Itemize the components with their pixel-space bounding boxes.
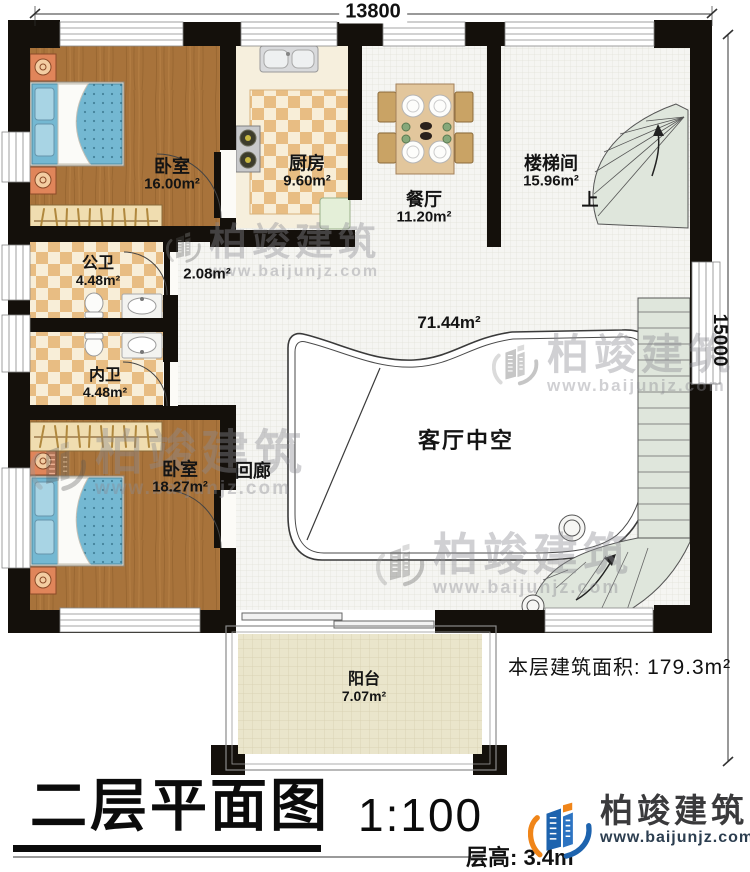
room-name: 内卫 [89, 367, 121, 385]
brand-company: 柏竣建筑 [600, 794, 750, 829]
floor-area-label: 本层建筑面积: [508, 657, 641, 679]
room-label-corridor: 回廊 [235, 457, 271, 483]
stair-direction-label: 上 [582, 186, 599, 211]
room-name: 卧室 [154, 157, 190, 177]
room-name: 厨房 [289, 154, 325, 174]
brand-glyph-icon [528, 794, 594, 862]
room-label-kitchen: 厨房 9.60m² [283, 154, 331, 191]
room-name: 公卫 [82, 255, 114, 273]
room-label-bedroom1: 卧室 16.00m² [144, 157, 200, 194]
room-name: 阳台 [348, 671, 380, 689]
room-label-bath-private: 内卫 4.48m² [83, 367, 127, 401]
floor-plan-drawing [0, 0, 750, 872]
room-name: 卧室 [162, 460, 198, 480]
dimension-height: 15000 [708, 314, 730, 367]
room-area: 4.48m² [76, 273, 120, 289]
brand-logo: 柏竣建筑 www.baijunjz.com [528, 794, 750, 862]
living-void-area-label: 71.44m² [417, 313, 480, 333]
room-area: 11.20m² [396, 210, 451, 227]
room-label-stairwell: 楼梯间 15.96m² [523, 154, 579, 191]
room-area: 18.27m² [152, 480, 208, 497]
kitchen-rug [250, 90, 348, 214]
fridge [320, 198, 350, 229]
stove [236, 126, 260, 172]
plan-scale: 1:100 [358, 792, 483, 838]
room-name: 楼梯间 [524, 154, 578, 174]
title-underline-thick [13, 845, 321, 852]
room-label-bedroom2: 卧室 18.27m² [152, 460, 208, 497]
dimension-width: 13800 [339, 1, 407, 24]
room-label-bath-public: 公卫 4.48m² [76, 255, 120, 289]
room-area: 16.00m² [144, 177, 200, 194]
room-area: 7.07m² [342, 689, 386, 705]
floor-plan-page: 柏竣建筑 www.baijunjz.com 柏竣建筑 www.baijunjz.… [0, 0, 750, 872]
floor-area-note: 本层建筑面积: 179.3m² [508, 651, 731, 680]
room-label-dining: 餐厅 11.20m² [396, 190, 451, 227]
balcony-sliding-door [236, 610, 435, 633]
room-area: 15.96m² [523, 174, 579, 191]
room-label-balcony: 阳台 7.07m² [342, 671, 386, 705]
room-label-living-void: 客厅中空 [418, 423, 514, 455]
floor-area-value: 179.3m² [647, 656, 731, 679]
wardrobe-bottom [30, 422, 162, 451]
room-area: 9.60m² [283, 174, 331, 191]
title-underline-thin [13, 856, 483, 858]
room-area: 4.48m² [83, 385, 127, 401]
plan-title: 二层平面图 [30, 778, 330, 835]
hallway-area-label: 2.08m² [183, 266, 231, 283]
brand-website: www.baijunjz.com [600, 829, 750, 847]
kitchen-sink [260, 46, 318, 72]
room-name: 餐厅 [406, 190, 442, 210]
